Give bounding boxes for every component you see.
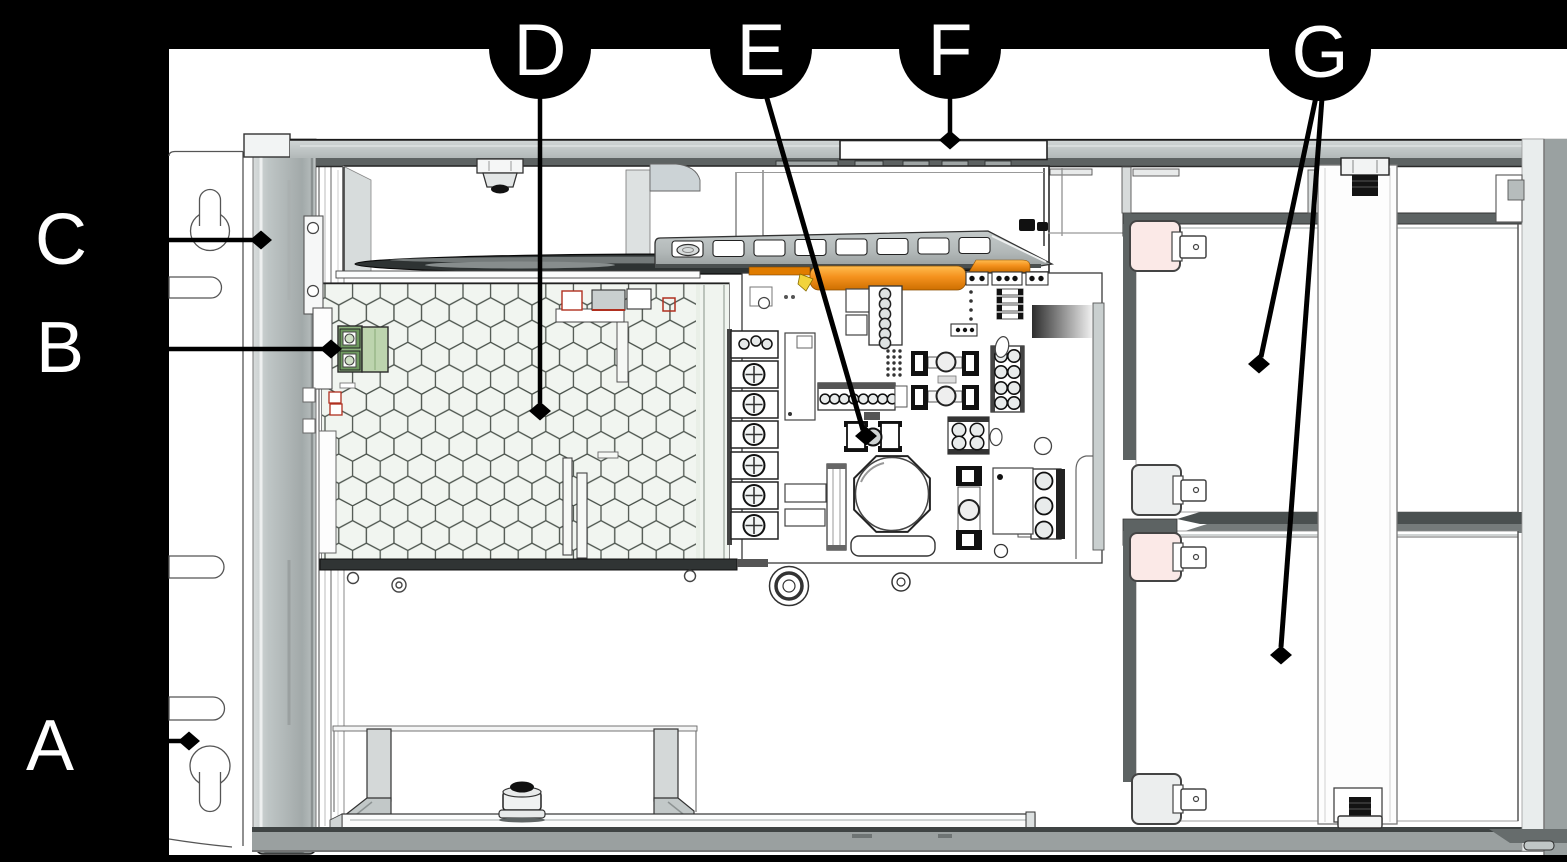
svg-text:F: F [928,10,973,91]
svg-text:A: A [26,706,74,786]
svg-text:G: G [1292,12,1349,93]
svg-text:D: D [514,10,567,91]
svg-text:C: C [35,200,87,280]
svg-text:B: B [36,308,84,388]
svg-text:E: E [737,10,786,91]
